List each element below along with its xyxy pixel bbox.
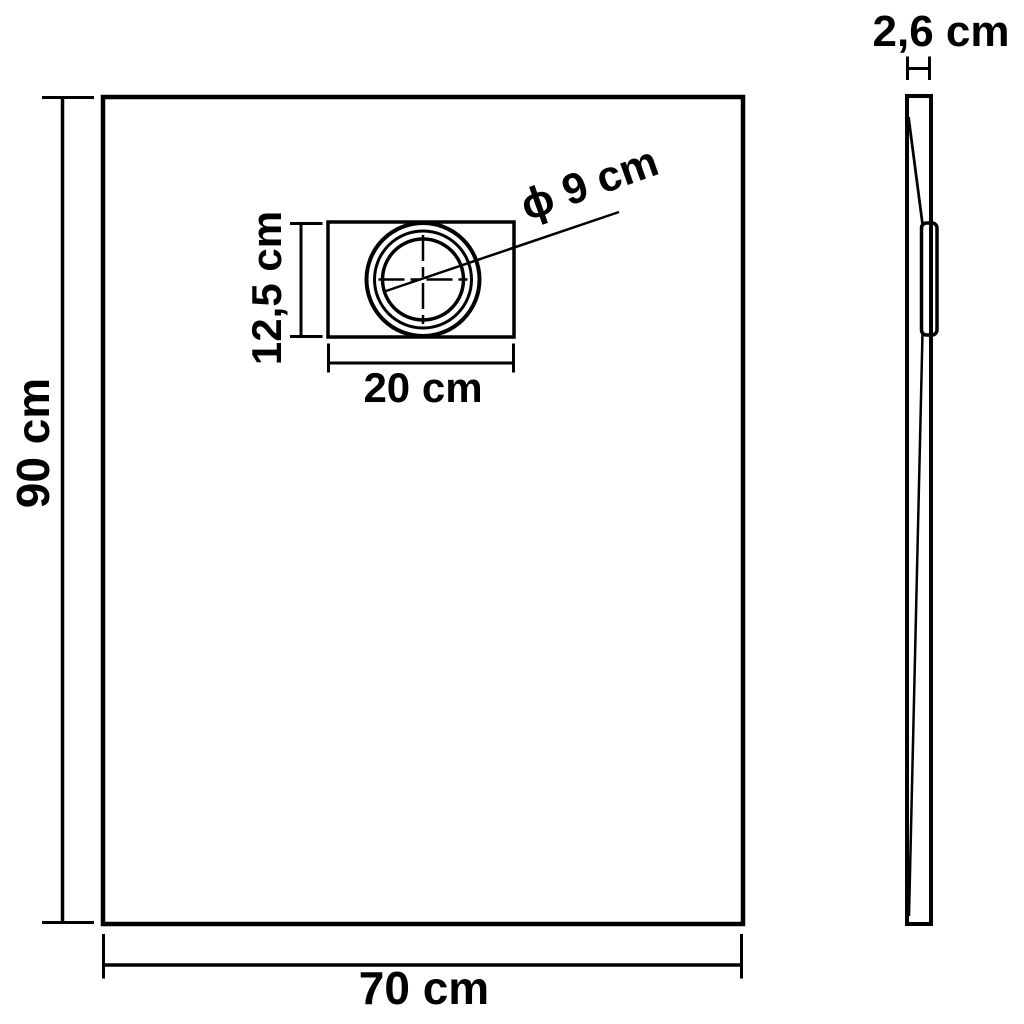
drain-box-width-dimension: 20 cm <box>329 344 514 412</box>
side-bottom-slope-line <box>909 334 923 917</box>
drain-box-height-dimension: 12,5 cm <box>243 211 323 365</box>
tray-height-label: 90 cm <box>7 378 59 508</box>
side-top-slope-line <box>909 117 923 224</box>
tray-width-dimension: 70 cm <box>104 934 742 1014</box>
tray-thickness-dimension: 2,6 cm <box>873 7 1010 80</box>
tray-thickness-label: 2,6 cm <box>873 7 1010 56</box>
drain-box-height-label: 12,5 cm <box>243 211 290 365</box>
drain-box-width-label: 20 cm <box>363 364 482 411</box>
drain-diameter-label: ϕ 9 cm <box>514 137 664 230</box>
side-view <box>907 96 937 924</box>
dimension-drawing-canvas: ϕ 9 cm 12,5 cm 20 cm 90 cm 70 cm <box>0 0 1024 1024</box>
tray-width-label: 70 cm <box>359 962 489 1014</box>
tray-height-dimension: 90 cm <box>7 97 94 923</box>
front-view: ϕ 9 cm 12,5 cm 20 cm <box>103 97 743 924</box>
drain-detail: ϕ 9 cm <box>328 137 664 337</box>
